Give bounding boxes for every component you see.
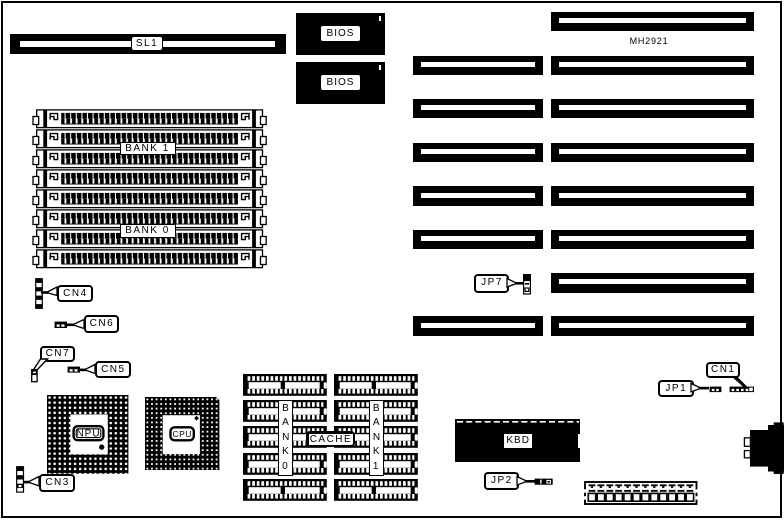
svg-text:CPU: CPU xyxy=(172,429,191,439)
svg-text:NPU: NPU xyxy=(76,428,100,439)
